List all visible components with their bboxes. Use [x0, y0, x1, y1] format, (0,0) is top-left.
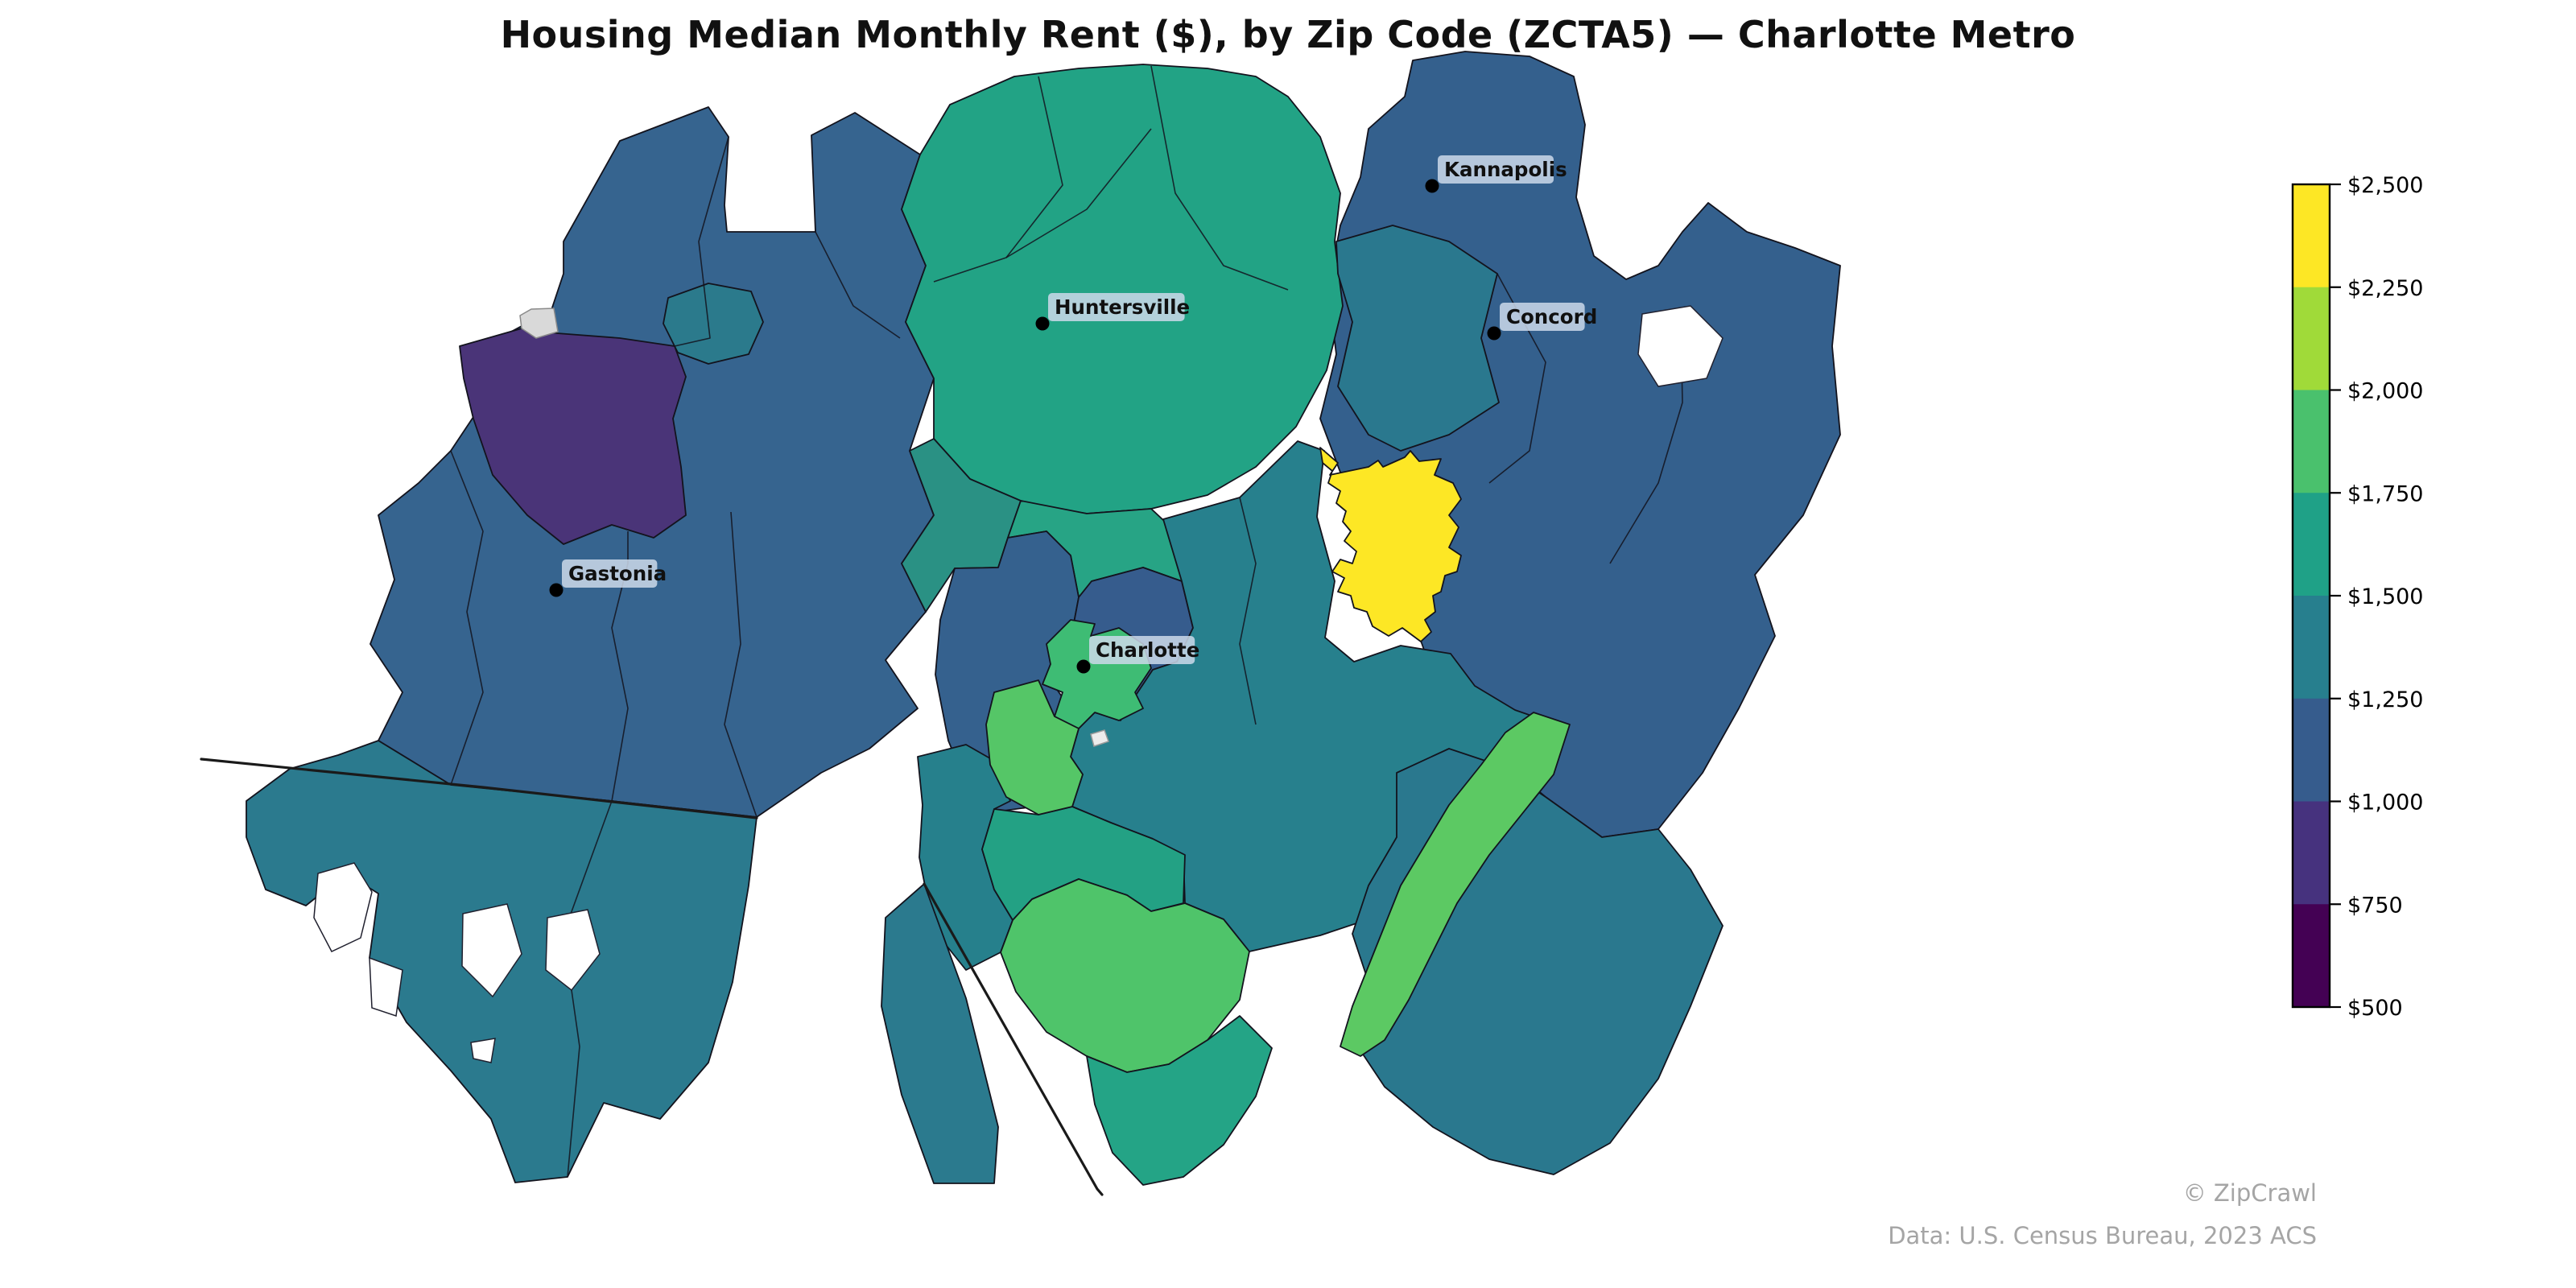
city-label: Huntersville: [1055, 295, 1190, 319]
city-dot: [1488, 327, 1501, 341]
white-island-southwest: [471, 1038, 495, 1063]
colorbar-band-1: [2293, 287, 2330, 390]
colorbar-tick-label: $2,250: [2347, 276, 2423, 301]
city-label: Concord: [1506, 305, 1597, 328]
figure-canvas: Housing Median Monthly Rent ($), by Zip …: [0, 0, 2576, 1288]
colorbar-band-3: [2293, 493, 2330, 596]
map-svg: $2,500$2,250$2,000$1,750$1,500$1,250$1,0…: [0, 0, 2576, 1288]
city-dot: [550, 584, 563, 597]
colorbar-tick-label: $500: [2347, 996, 2403, 1021]
colorbar-tick-label: $2,000: [2347, 379, 2423, 404]
colorbar-tick-label: $1,500: [2347, 584, 2423, 609]
colorbar-band-6: [2293, 802, 2330, 905]
colorbar-band-7: [2293, 904, 2330, 1007]
watermark-text: © ZipCrawl: [1888, 1172, 2317, 1215]
colorbar-tick-label: $1,250: [2347, 687, 2423, 712]
city-label: Kannapolis: [1444, 158, 1567, 181]
city-dot: [1036, 317, 1050, 331]
colorbar-tick-label: $2,500: [2347, 173, 2423, 198]
colorbar: $2,500$2,250$2,000$1,750$1,500$1,250$1,0…: [2293, 173, 2423, 1021]
colorbar-band-2: [2293, 390, 2330, 493]
zip-region-teal-zip-northwest: [663, 283, 763, 364]
colorbar-band-0: [2293, 184, 2330, 287]
colorbar-band-4: [2293, 596, 2330, 699]
source-text: Data: U.S. Census Bureau, 2023 ACS: [1888, 1215, 2317, 1257]
zip-region-teal-north-huntersville: [902, 64, 1343, 514]
zip-region-teal-wedge-west-concord: [1336, 225, 1499, 451]
city-label: Charlotte: [1096, 638, 1199, 662]
colorbar-tick-label: $750: [2347, 893, 2403, 918]
colorbar-tick-label: $1,000: [2347, 791, 2423, 815]
city-dot: [1077, 660, 1091, 674]
colorbar-tick-label: $1,750: [2347, 481, 2423, 506]
city-label: Gastonia: [568, 562, 667, 585]
attribution: © ZipCrawl Data: U.S. Census Bureau, 202…: [1888, 1172, 2317, 1257]
city-dot: [1426, 180, 1439, 193]
colorbar-band-5: [2293, 699, 2330, 802]
